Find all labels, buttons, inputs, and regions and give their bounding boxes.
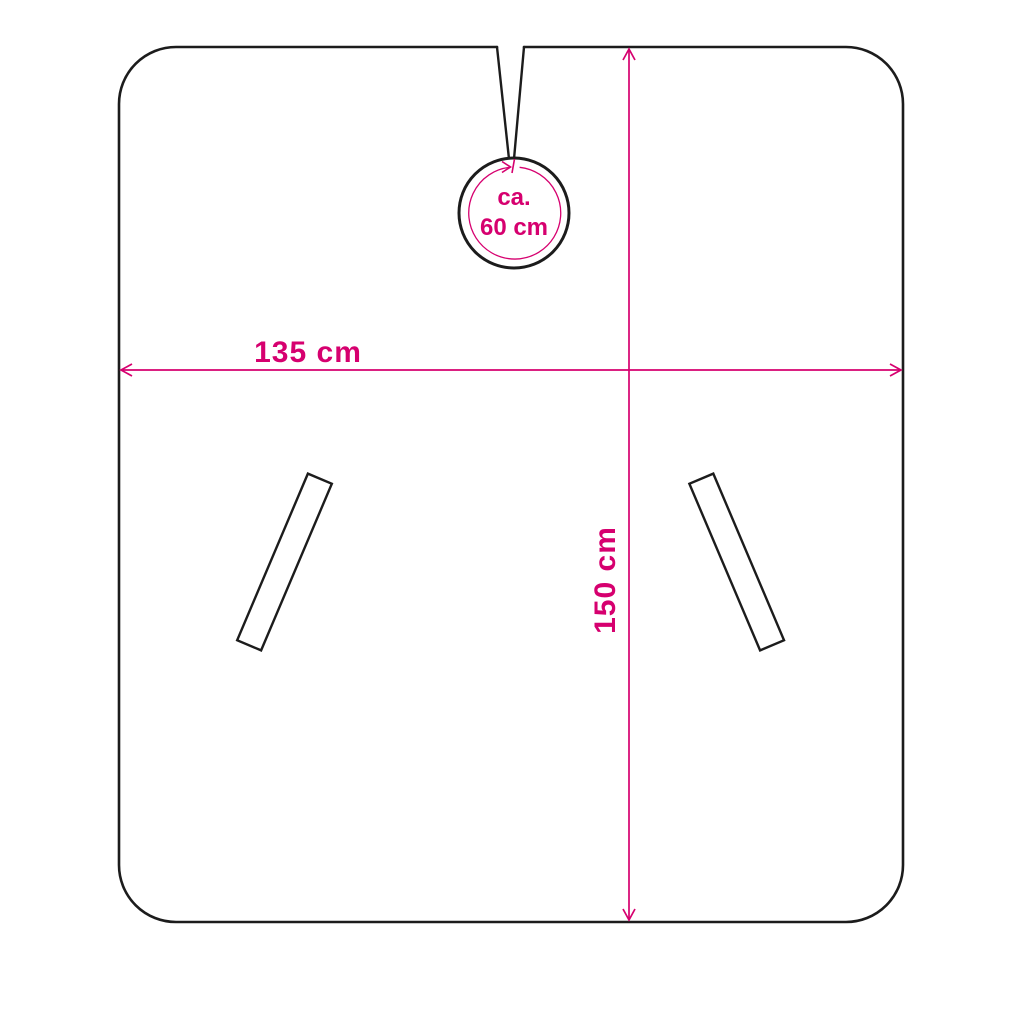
neck-slit-left-line [497,47,509,159]
neck-approx-text: ca. [480,183,548,213]
left-hand-slit [237,474,332,651]
width-dimension-label: 135 cm [254,336,362,370]
cape-dimension-drawing [0,0,1024,1024]
neck-slit-right-line [514,47,524,159]
right-hand-slit [689,474,784,651]
neck-circumference-label: ca. 60 cm [480,183,548,243]
neck-size-text: 60 cm [480,213,548,243]
diagram-canvas: 135 cm 150 cm ca. 60 cm [0,0,1024,1024]
height-dimension-label: 150 cm [589,526,623,634]
